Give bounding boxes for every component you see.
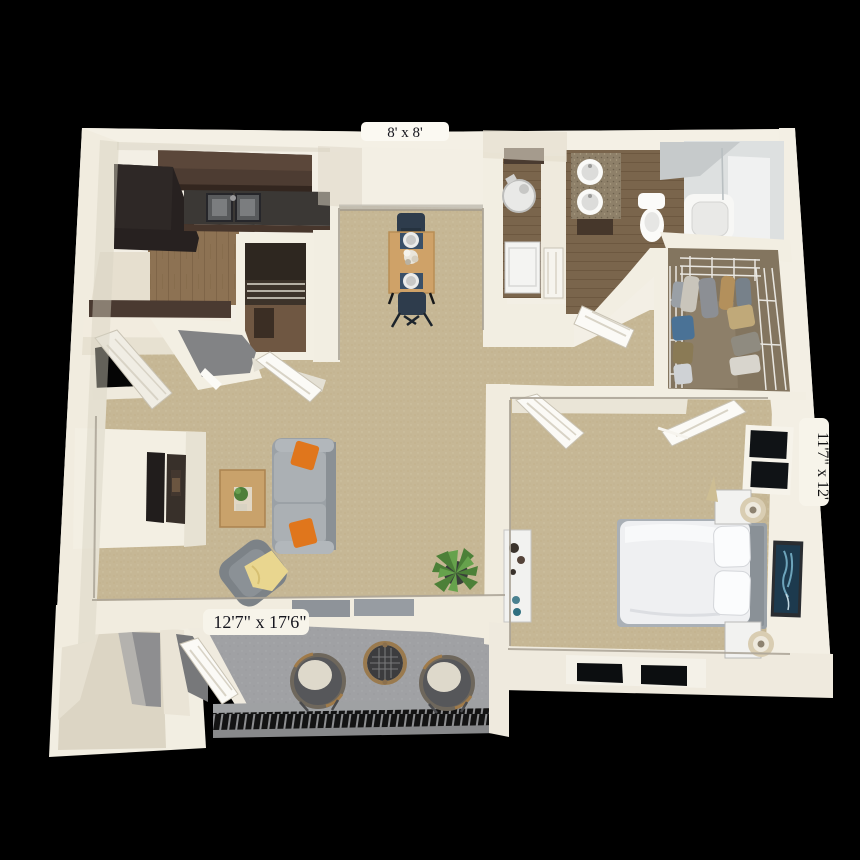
svg-text:12'7" x 17'6": 12'7" x 17'6" — [213, 612, 306, 632]
svg-text:11'7" x 12': 11'7" x 12' — [814, 432, 831, 500]
svg-text:8' x 8': 8' x 8' — [387, 125, 423, 141]
